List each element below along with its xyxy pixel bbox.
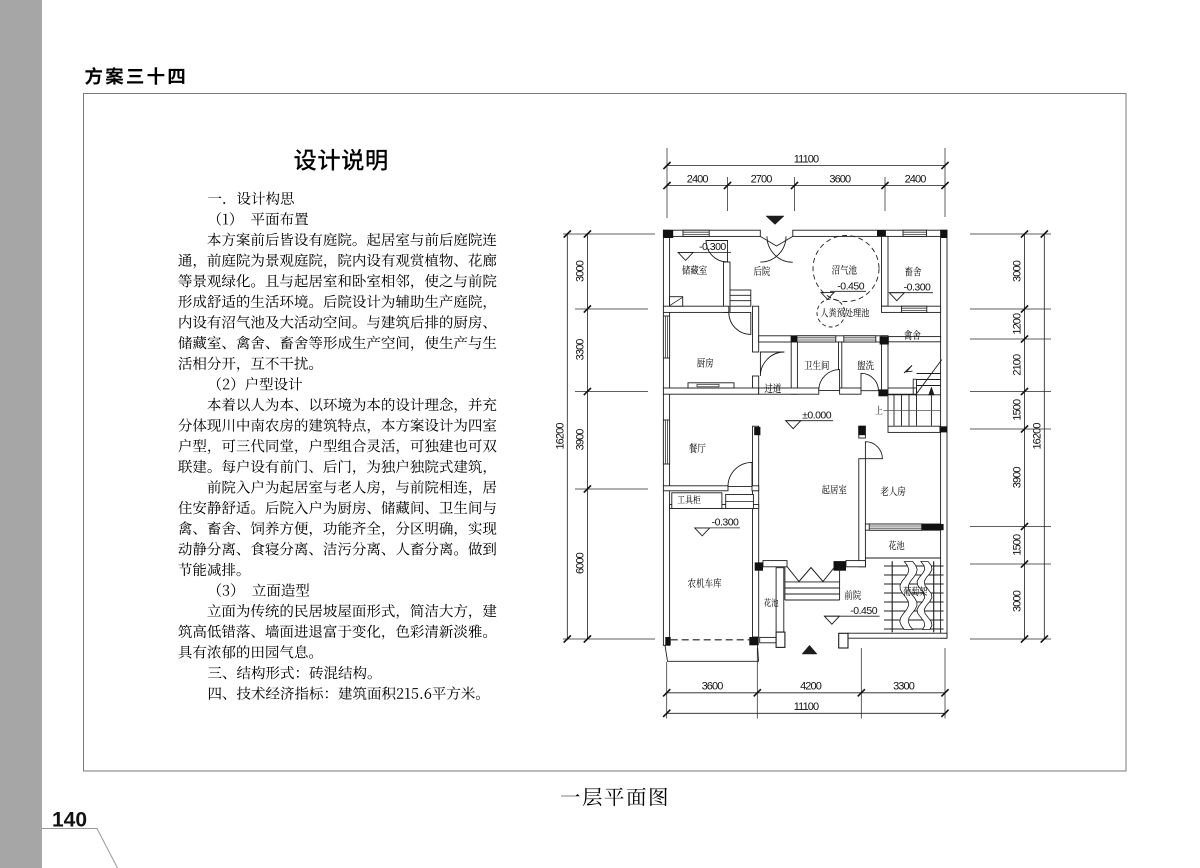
svg-text:-0.300: -0.300 — [712, 517, 739, 529]
svg-text:11100: 11100 — [794, 153, 819, 165]
svg-text:3000: 3000 — [1012, 260, 1024, 282]
svg-text:-0.300: -0.300 — [904, 281, 931, 293]
svg-text:4200: 4200 — [800, 680, 822, 692]
svg-text:1200: 1200 — [1012, 313, 1024, 335]
svg-text:-0.450: -0.450 — [837, 280, 864, 292]
svg-text:3000: 3000 — [1012, 590, 1024, 612]
svg-text:3900: 3900 — [1012, 467, 1024, 489]
svg-text:16200: 16200 — [1032, 423, 1044, 450]
svg-text:3000: 3000 — [575, 260, 587, 282]
svg-text:2700: 2700 — [751, 173, 773, 185]
svg-text:16200: 16200 — [555, 423, 567, 450]
svg-text:1500: 1500 — [1012, 399, 1024, 421]
svg-text:3600: 3600 — [829, 173, 851, 185]
svg-text:3300: 3300 — [575, 339, 587, 361]
svg-text:3600: 3600 — [702, 680, 724, 692]
svg-text:2100: 2100 — [1012, 354, 1024, 376]
svg-text:-0.300: -0.300 — [699, 241, 726, 253]
svg-text:3300: 3300 — [893, 680, 915, 692]
svg-text:±0.000: ±0.000 — [802, 410, 832, 422]
svg-text:1500: 1500 — [1012, 534, 1024, 556]
svg-text:11100: 11100 — [794, 701, 819, 713]
svg-text:6000: 6000 — [575, 552, 587, 574]
svg-text:3900: 3900 — [575, 429, 587, 451]
svg-text:2400: 2400 — [687, 173, 709, 185]
svg-text:-0.450: -0.450 — [850, 605, 877, 617]
svg-text:2400: 2400 — [905, 173, 927, 185]
